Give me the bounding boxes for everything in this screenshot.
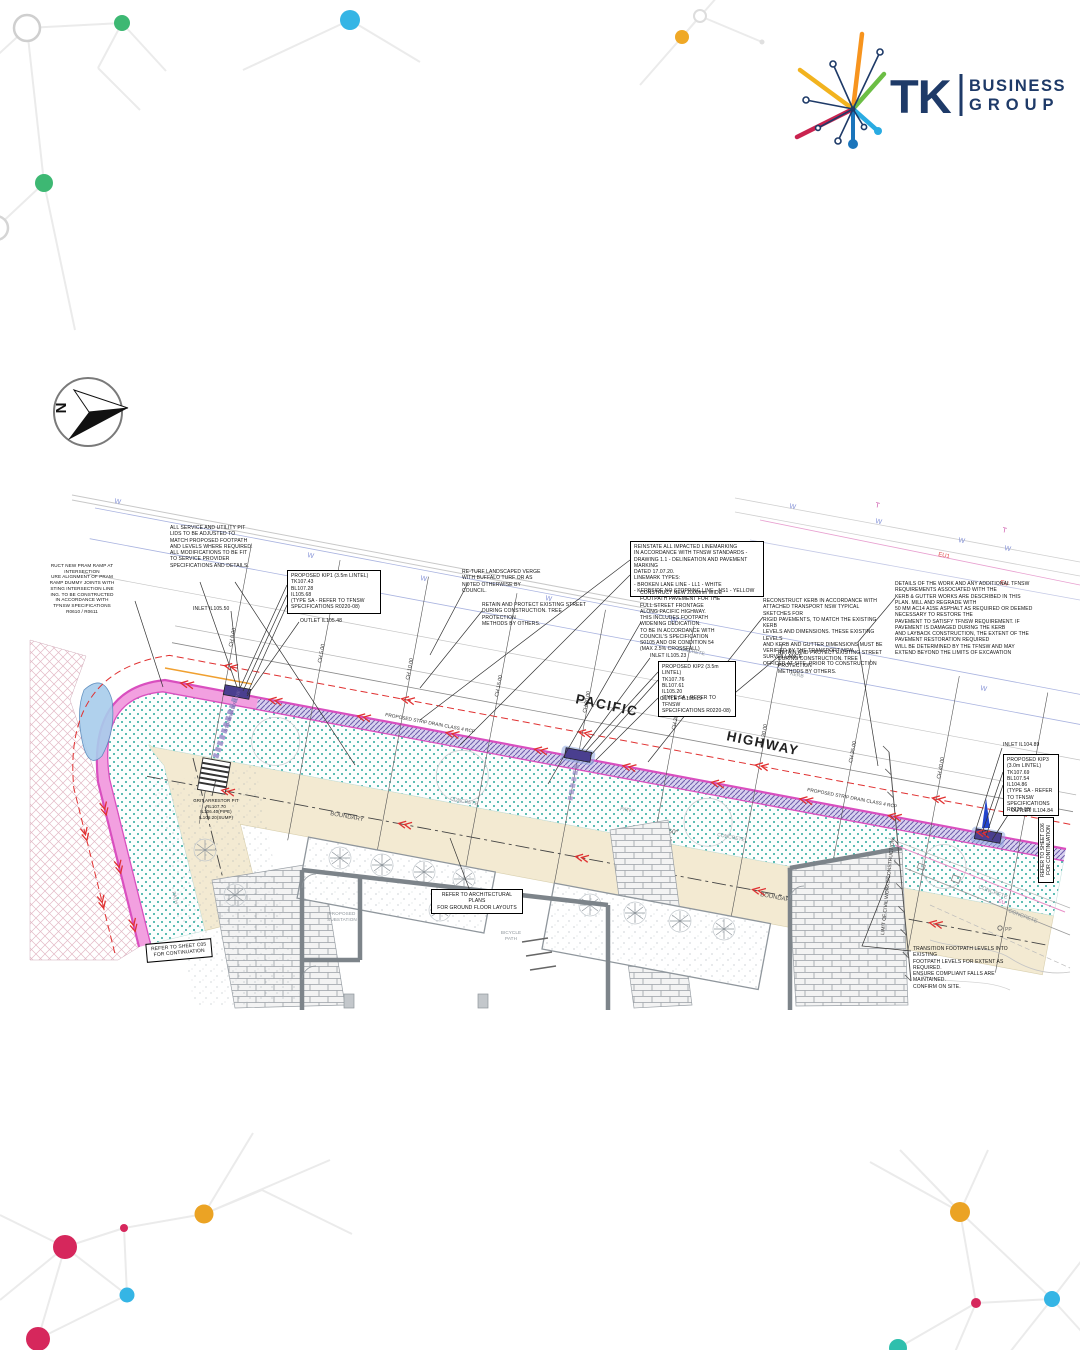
- node-amber-bl: [195, 1205, 214, 1224]
- svg-text:KERB: KERB: [790, 671, 805, 680]
- plan-drawing: CH 0.00 CH 5.00 CH 10.00 CH 15.00 CH 20.…: [30, 495, 1080, 1010]
- north-arrow: N: [53, 378, 128, 446]
- node-dot: [760, 40, 765, 45]
- node-cyan-bl: [120, 1288, 135, 1303]
- node-crimson-sm: [120, 1224, 128, 1232]
- svg-text:W: W: [114, 498, 122, 506]
- svg-text:W: W: [307, 552, 315, 560]
- svg-text:CH 5.00: CH 5.00: [317, 643, 327, 663]
- power-pole-label: PP: [1005, 927, 1012, 933]
- node-crimson-2: [26, 1327, 50, 1350]
- logo-starburst-icon: [797, 34, 884, 149]
- svg-text:CH 15.00: CH 15.00: [494, 675, 504, 698]
- svg-text:EU1: EU1: [938, 552, 951, 560]
- svg-text:CH 45.18: CH 45.18: [1025, 774, 1035, 797]
- node-circle-outline-2: [0, 216, 8, 240]
- node-circle-outline: [14, 15, 40, 41]
- svg-text:T: T: [1002, 527, 1008, 535]
- decor-nodes-top: [0, 10, 765, 240]
- node-gray: [694, 10, 706, 22]
- svg-text:CONCRETE: CONCRETE: [677, 646, 706, 657]
- node-cyan: [340, 10, 360, 30]
- node-amber-br: [950, 1202, 970, 1222]
- logo-tk-text: TK: [890, 70, 952, 123]
- node-green: [114, 15, 130, 31]
- svg-text:KERB: KERB: [360, 576, 375, 585]
- decor-network-top: [0, 0, 762, 330]
- post-canvas: TK BUSINESS GROUP N: [0, 0, 1080, 1350]
- street-name-pacific: PACIFIC: [574, 691, 639, 719]
- svg-text:T: T: [875, 502, 881, 510]
- node-crimson-br: [971, 1298, 981, 1308]
- svg-text:W: W: [958, 537, 966, 545]
- svg-text:W: W: [1004, 545, 1012, 553]
- svg-text:W: W: [545, 595, 553, 603]
- svg-text:CH 35.00: CH 35.00: [848, 741, 858, 764]
- svg-text:EU: EU: [1000, 580, 1009, 587]
- artwork-layer: TK BUSINESS GROUP N: [0, 0, 1080, 1350]
- svg-text:W: W: [670, 617, 678, 625]
- north-label: N: [53, 403, 70, 414]
- decor-nodes-bottom: [26, 1202, 1060, 1350]
- node-green-2: [35, 174, 53, 192]
- node-amber: [675, 30, 689, 44]
- svg-text:W: W: [789, 503, 797, 511]
- logo-business-text: BUSINESS: [969, 77, 1066, 95]
- svg-text:CH 40.00: CH 40.00: [936, 757, 946, 780]
- brand-logo: TK BUSINESS GROUP: [797, 34, 1066, 149]
- node-teal-br: [889, 1339, 907, 1350]
- logo-group-text: GROUP: [969, 96, 1060, 114]
- svg-text:CH 10.00: CH 10.00: [405, 658, 415, 681]
- node-cyan-br: [1044, 1291, 1060, 1307]
- decor-network-bottom: [0, 1133, 1080, 1350]
- utility-labels: W W W W W W W W W W T T EU1 EU: [114, 498, 1012, 693]
- svg-text:W: W: [980, 685, 988, 693]
- svg-text:W: W: [420, 575, 428, 583]
- node-crimson: [53, 1235, 77, 1259]
